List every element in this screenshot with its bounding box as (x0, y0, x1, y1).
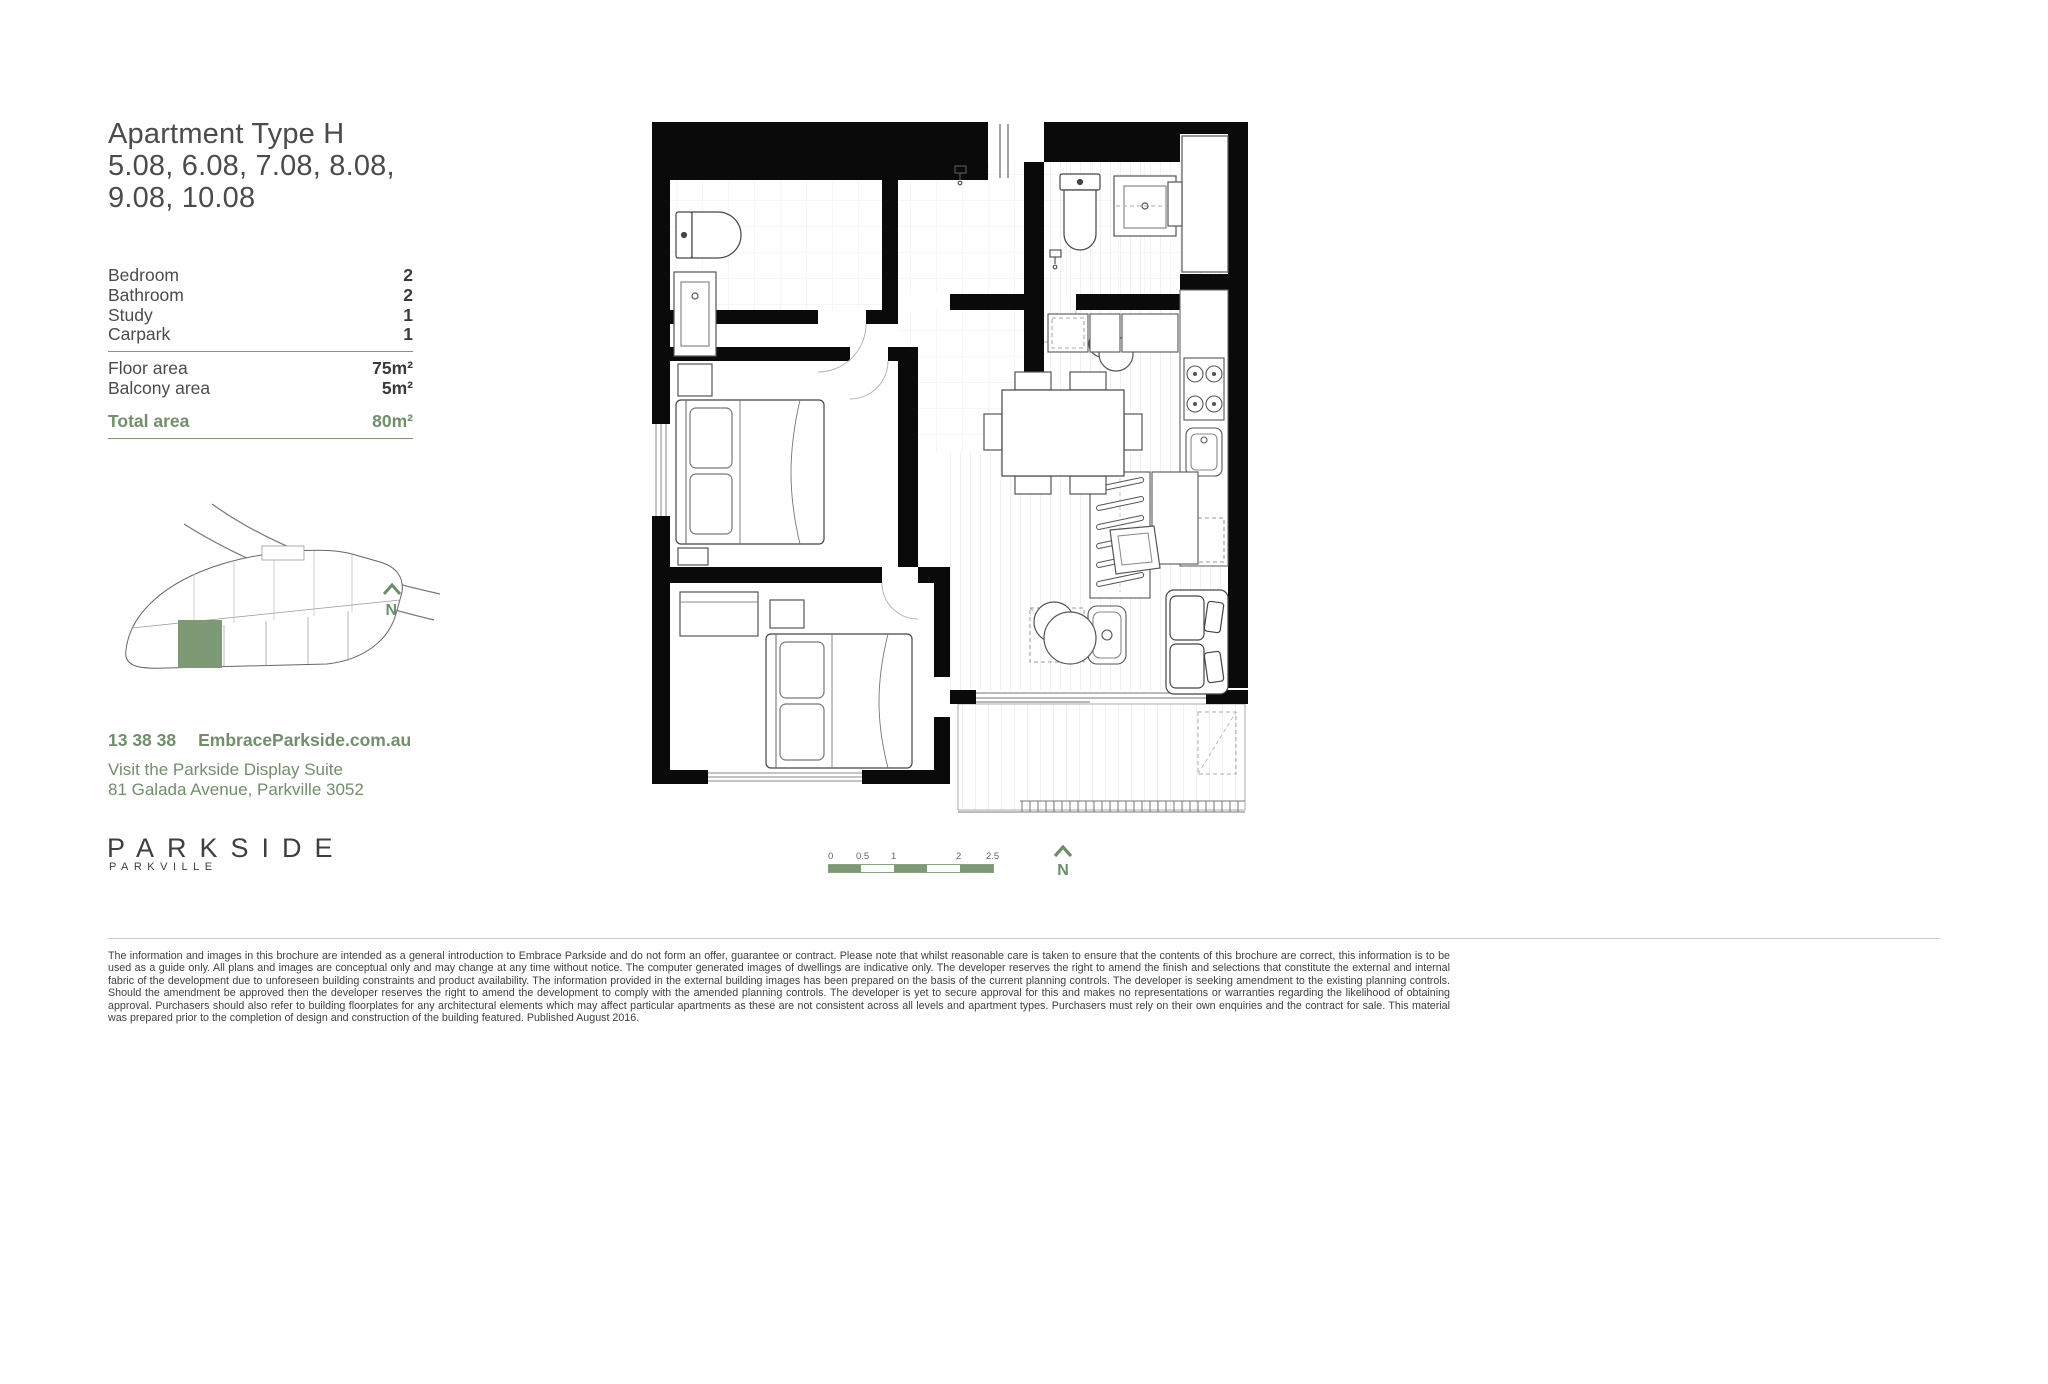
linen-cupboard (1152, 472, 1198, 564)
spec-label: Bathroom (108, 286, 184, 306)
parkside-logo-sub: PARKVILLE (109, 861, 218, 873)
pillow (780, 704, 824, 760)
area-value: 5m² (382, 379, 413, 399)
building-footprint (126, 546, 403, 668)
unit-numbers-line1: 5.08, 6.08, 7.08, 8.08, (108, 150, 395, 182)
highlighted-unit (178, 620, 222, 668)
pillow (780, 642, 824, 698)
total-value: 80m² (372, 410, 413, 432)
sofa-icon (1166, 590, 1228, 694)
footer-divider (108, 938, 1940, 939)
spec-value: 2 (403, 266, 413, 286)
parkside-logo: PARKSIDE (107, 833, 346, 864)
bedroom-2 (676, 364, 824, 565)
visit-block: Visit the Parkside Display Suite 81 Gala… (108, 760, 364, 799)
dining-set (984, 372, 1142, 494)
floor-area-row: Floor area 75m² (108, 359, 413, 379)
total-label: Total area (108, 410, 189, 432)
scale-label: 2 (956, 851, 961, 862)
north-arrow: N (1050, 843, 1076, 878)
toilet-icon (1060, 174, 1100, 250)
scale-label: 0.5 (856, 851, 869, 862)
divider (108, 351, 413, 352)
area-label: Balcony area (108, 379, 210, 399)
spec-row-carpark: Carpark 1 (108, 325, 413, 345)
visit-line1: Visit the Parkside Display Suite (108, 760, 364, 780)
scale-bar: 0 0.5 1 2 2.5 (828, 851, 1000, 877)
visit-line2: 81 Galada Avenue, Parkville 3052 (108, 780, 364, 800)
brochure-page: { "header": { "title_line1": "Apartment … (0, 0, 2048, 1384)
spec-row-study: Study 1 (108, 306, 413, 326)
vanity-icon (1114, 176, 1176, 236)
svg-text:N: N (386, 602, 398, 619)
website-link[interactable]: EmbraceParkside.com.au (198, 730, 411, 751)
apartment-type: Apartment Type H (108, 118, 395, 150)
disclaimer-text: The information and images in this broch… (108, 950, 1450, 1024)
dining-table (1002, 390, 1124, 476)
spec-label: Carpark (108, 325, 170, 345)
toilet-icon (676, 212, 741, 258)
pillow (690, 474, 732, 534)
spec-label: Bedroom (108, 266, 179, 286)
spec-value: 1 (403, 325, 413, 345)
area-value: 75m² (372, 359, 413, 379)
scale-label: 1 (891, 851, 896, 862)
kitchen-sink-icon (1186, 428, 1222, 476)
scale-label: 2.5 (986, 851, 999, 862)
north-chevron-icon (1050, 843, 1076, 859)
pillow (690, 408, 732, 468)
vanity-icon (674, 272, 716, 356)
balcony-area-row: Balcony area 5m² (108, 379, 413, 399)
divider (108, 438, 413, 439)
spec-label: Study (108, 306, 153, 326)
floor-plan (650, 122, 1248, 817)
page-title: Apartment Type H 5.08, 6.08, 7.08, 8.08,… (108, 118, 395, 214)
total-area-row: Total area 80m² (108, 410, 413, 432)
unit-numbers-line2: 9.08, 10.08 (108, 182, 395, 214)
spec-row-bedroom: Bedroom 2 (108, 266, 413, 286)
spec-value: 2 (403, 286, 413, 306)
area-label: Floor area (108, 359, 188, 379)
balcony (958, 704, 1245, 812)
phone-number: 13 38 38 (108, 730, 176, 751)
bedroom-1 (680, 592, 912, 768)
side-table (770, 600, 804, 628)
scale-bar-segments (828, 864, 994, 873)
scale-label: 0 (828, 851, 833, 862)
north-letter: N (1050, 864, 1076, 878)
armchair-icon (1110, 526, 1160, 574)
site-map: Galada Avenue N (112, 502, 442, 692)
side-table (678, 364, 712, 396)
spec-value: 1 (403, 306, 413, 326)
spec-table: Bedroom 2 Bathroom 2 Study 1 Carpark 1 F… (108, 266, 413, 446)
dresser (680, 592, 758, 636)
side-table (678, 548, 708, 565)
contact-line: 13 38 38 EmbraceParkside.com.au (108, 730, 411, 751)
spec-row-bathroom: Bathroom 2 (108, 286, 413, 306)
